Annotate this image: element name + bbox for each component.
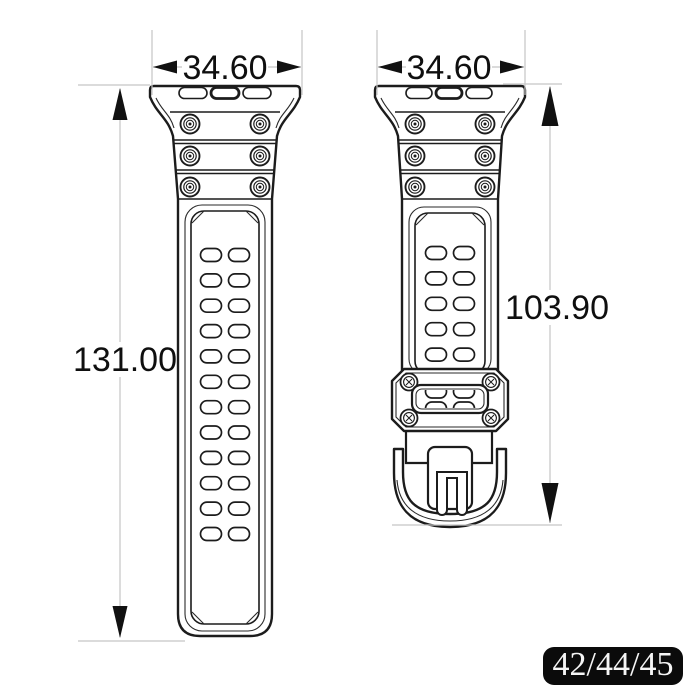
screw xyxy=(251,178,270,197)
arrowhead-up xyxy=(542,86,559,126)
arrowhead-up xyxy=(113,88,128,120)
arrowhead-down xyxy=(542,483,559,523)
right-strap-outline xyxy=(375,86,525,374)
length-label-right: 103.90 xyxy=(505,289,609,327)
arrowhead-left xyxy=(378,61,402,74)
screw xyxy=(406,178,425,197)
screw xyxy=(251,147,270,166)
screw xyxy=(476,115,495,134)
screw xyxy=(181,147,200,166)
width-label-right: 34.60 xyxy=(406,49,491,87)
width-label-left: 34.60 xyxy=(182,49,267,87)
right-strap-view xyxy=(375,86,525,527)
size-badge: 42/44/45 xyxy=(543,646,683,685)
keeper-plate xyxy=(392,369,508,431)
length-label-left: 131.00 xyxy=(73,341,177,379)
screw xyxy=(406,147,425,166)
size-badge-label: 42/44/45 xyxy=(553,646,674,683)
screw xyxy=(181,115,200,134)
arrowhead-down xyxy=(113,606,128,638)
arrowhead-right xyxy=(500,61,524,74)
screw xyxy=(476,147,495,166)
arrowhead-left xyxy=(153,61,177,74)
watch-strap-dimension-diagram: 34.60 34.60 131.00 103.90 42/44/45 xyxy=(0,0,700,700)
screw xyxy=(181,178,200,197)
screw xyxy=(406,115,425,134)
screw xyxy=(476,178,495,197)
dimension-left-length: 131.00 xyxy=(73,85,185,641)
arrowhead-right xyxy=(277,61,301,74)
screw xyxy=(251,115,270,134)
